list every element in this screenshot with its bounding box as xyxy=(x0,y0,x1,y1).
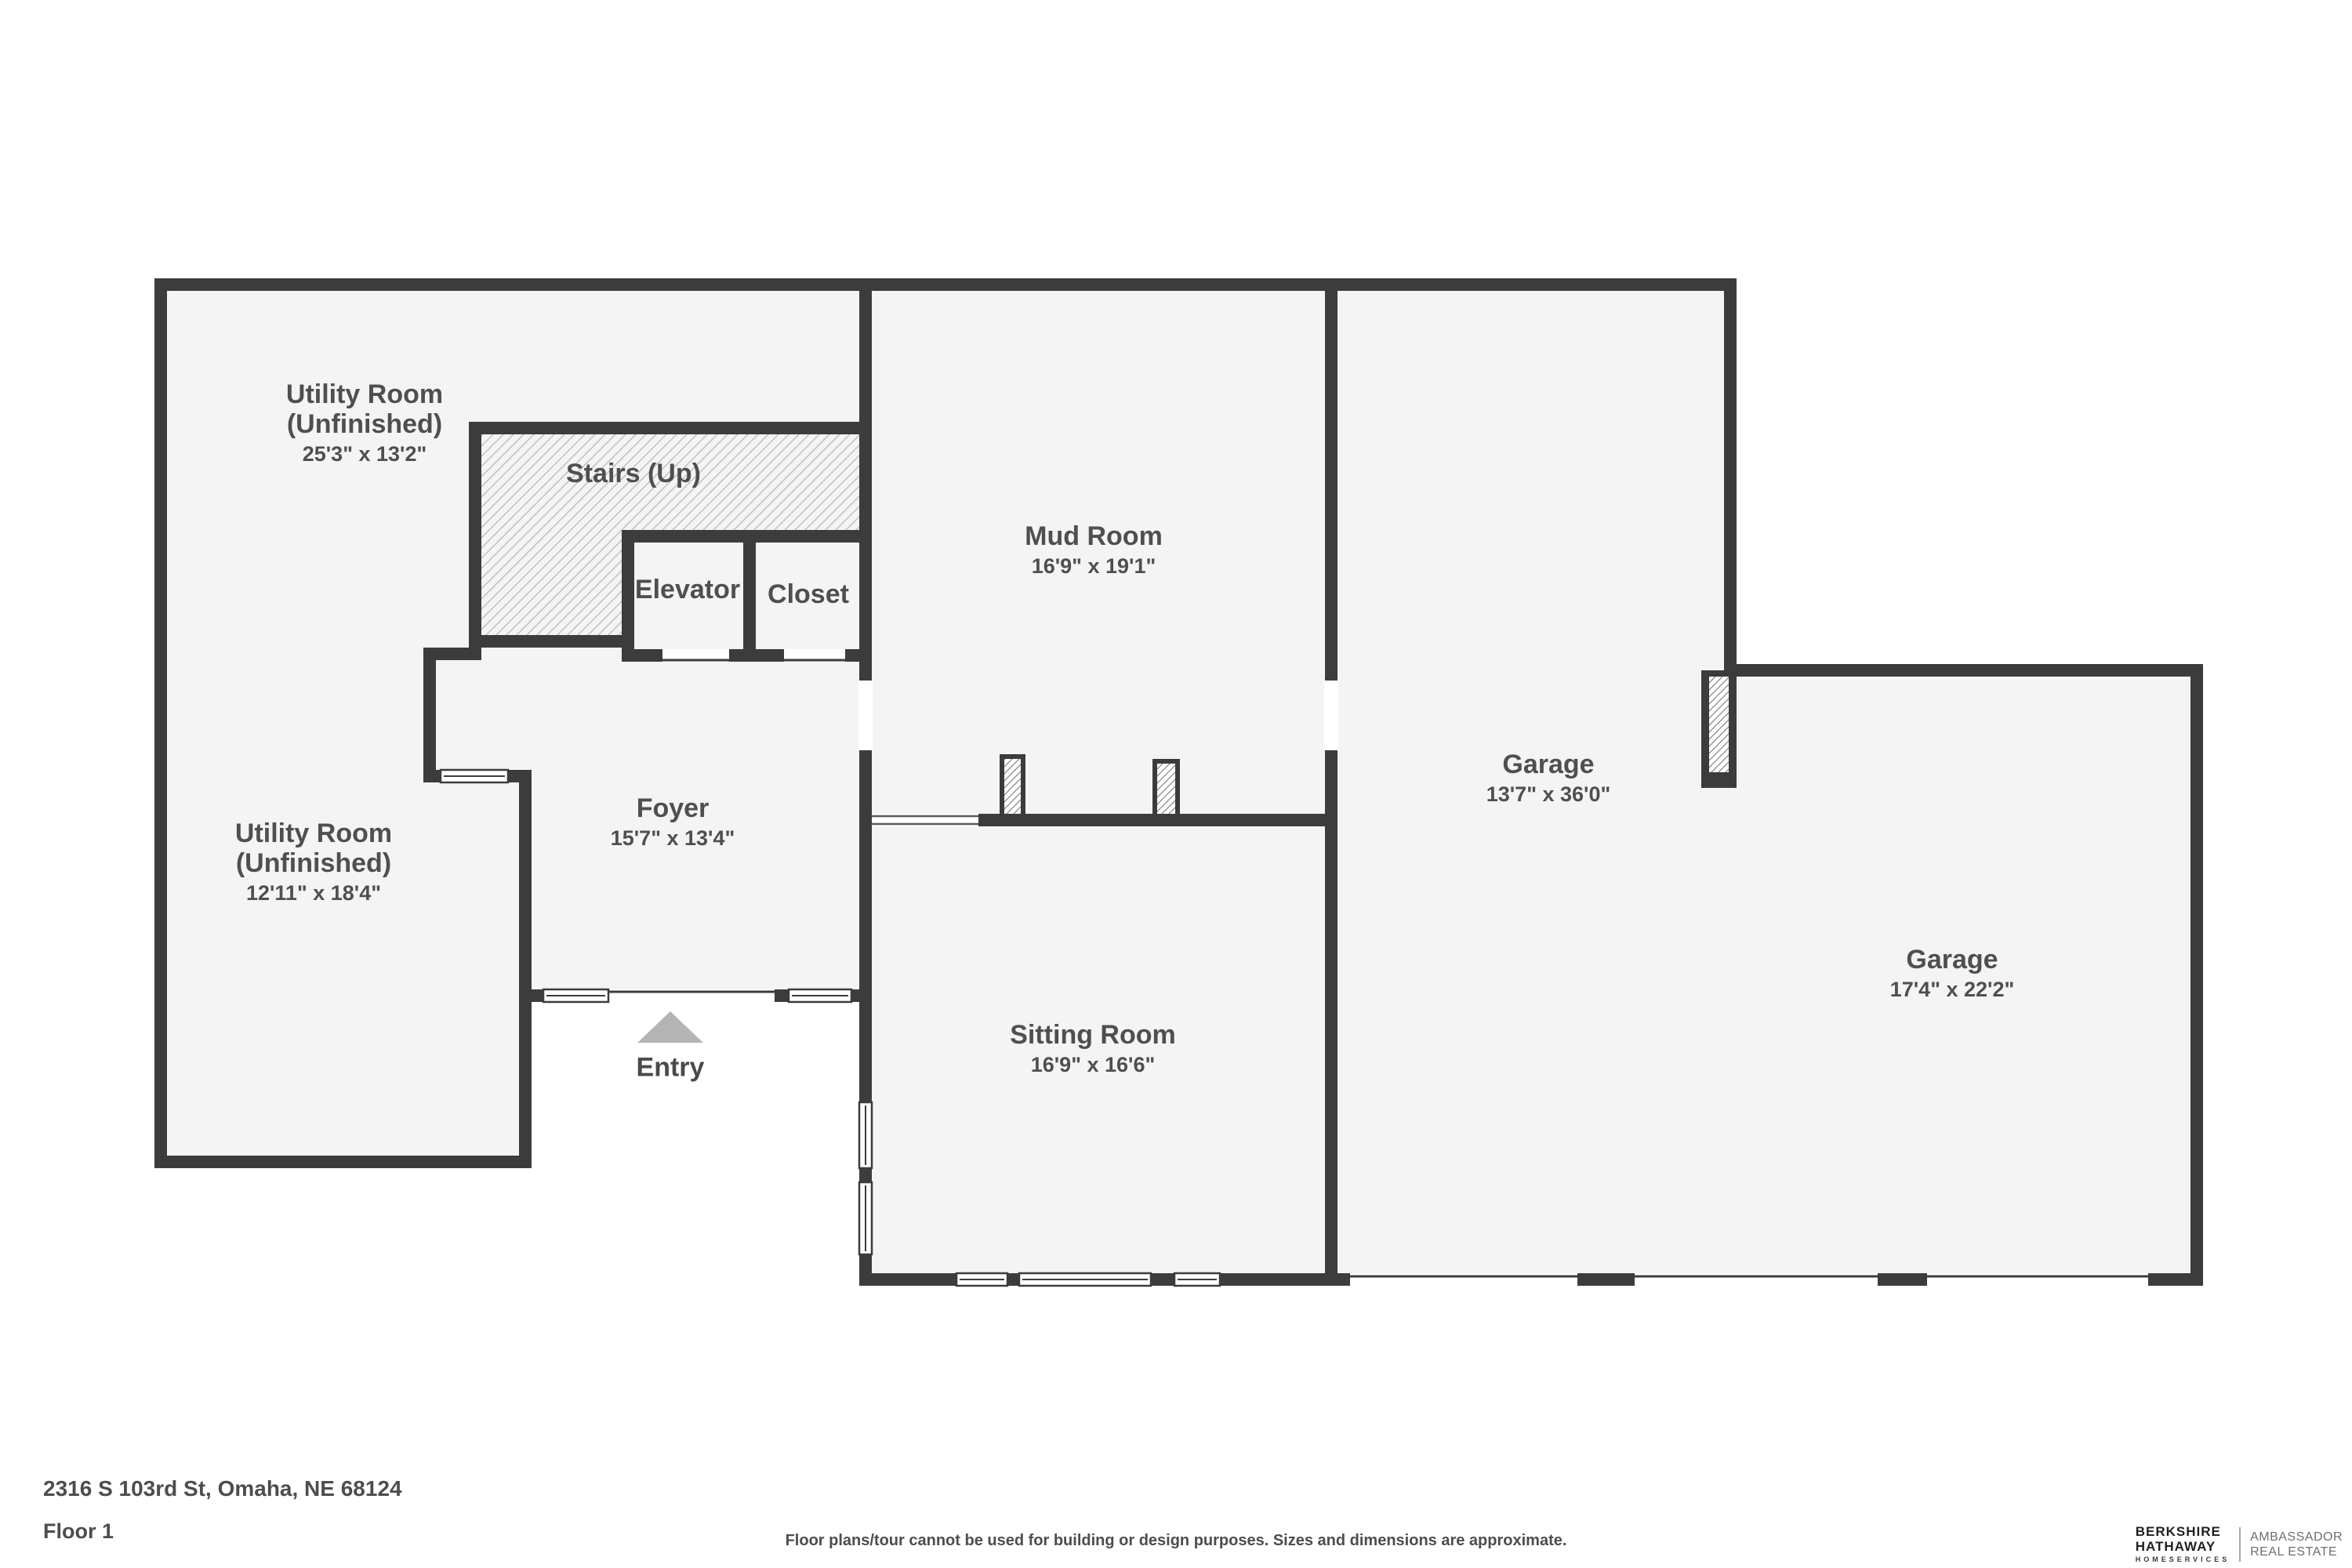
door-mudroom-garage xyxy=(1324,681,1338,750)
floor-plan-canvas: Utility Room (Unfinished) 25'3" x 13'2" … xyxy=(0,0,2352,1568)
partner-line2: REAL ESTATE xyxy=(2250,1544,2343,1559)
door-foyer-mudroom xyxy=(858,681,873,750)
brand-line3: HOMESERVICES xyxy=(2136,1555,2230,1565)
entry-arrow-icon xyxy=(637,1011,703,1043)
garage-door-2 xyxy=(1635,1273,1878,1286)
brand-line2: HATHAWAY xyxy=(2136,1539,2230,1554)
floor-plan-svg xyxy=(0,0,2352,1568)
ambassador-real-estate-wordmark: AMBASSADOR REAL ESTATE xyxy=(2250,1530,2343,1559)
partner-line1: AMBASSADOR xyxy=(2250,1530,2343,1544)
brand-line1: BERKSHIRE xyxy=(2136,1524,2230,1539)
property-address: 2316 S 103rd St, Omaha, NE 68124 xyxy=(43,1477,402,1501)
garage-door-1 xyxy=(1350,1273,1577,1286)
garage-door-3 xyxy=(1927,1273,2148,1286)
disclaimer-text: Floor plans/tour cannot be used for buil… xyxy=(786,1532,1567,1550)
footer-left: 2316 S 103rd St, Omaha, NE 68124 Floor 1 xyxy=(43,1477,402,1544)
floor-label: Floor 1 xyxy=(43,1519,402,1544)
brokerage-logo: BERKSHIRE HATHAWAY HOMESERVICES AMBASSAD… xyxy=(2136,1524,2343,1565)
berkshire-hathaway-wordmark: BERKSHIRE HATHAWAY HOMESERVICES xyxy=(2136,1524,2230,1565)
logo-divider xyxy=(2239,1527,2241,1562)
